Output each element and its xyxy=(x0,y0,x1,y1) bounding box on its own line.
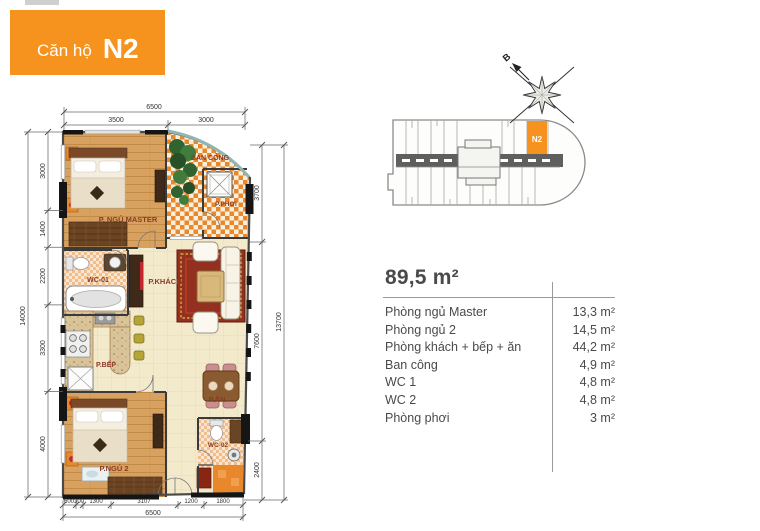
table-divider xyxy=(383,297,615,298)
area-row-value: 4,8 m² xyxy=(543,374,617,392)
area-row-label: Phòng khách + bếp + ăn xyxy=(385,339,543,357)
room-label-wc1: WC-01 xyxy=(87,277,109,284)
dim-right-1: 3700 xyxy=(254,185,261,201)
dim-left-3: 2200 xyxy=(40,268,47,284)
master-tv-cabinet xyxy=(155,170,165,202)
area-row-value: 14,5 m² xyxy=(543,322,617,340)
dim-right-2: 7600 xyxy=(254,333,261,349)
area-row: Phòng ngủ Master 13,3 m² xyxy=(385,304,617,322)
area-row: Phòng ngủ 2 14,5 m² xyxy=(385,322,617,340)
bedroom2-tv-cabinet xyxy=(153,414,163,448)
room-label-bedroom2: P.NGỦ 2 xyxy=(99,464,128,473)
room-label-master: P. NGỦ MASTER xyxy=(99,215,158,224)
dim-bot-6: 1800 xyxy=(216,499,230,505)
dim-left-total: 14000 xyxy=(20,306,27,326)
tv-screen xyxy=(140,262,143,290)
area-row-label: Phòng phơi xyxy=(385,410,543,428)
area-row: WC 1 4,8 m² xyxy=(385,374,617,392)
dim-left-1: 3000 xyxy=(40,163,47,179)
area-row-value: 4,9 m² xyxy=(543,357,617,375)
washing-machine-icon xyxy=(207,172,232,197)
compass-north-label: B xyxy=(501,51,513,64)
area-table: 89,5 m² Phòng ngủ Master 13,3 m² Phòng n… xyxy=(385,266,617,427)
dim-bottom-total: 6500 xyxy=(145,510,161,517)
dim-bot-4: 3107 xyxy=(137,499,151,505)
bedroom2-wardrobe xyxy=(108,477,162,494)
site-plan: N2 xyxy=(388,120,585,205)
area-row-label: Phòng ngủ 2 xyxy=(385,322,543,340)
dim-top-total: 6500 xyxy=(146,104,162,111)
area-row-label: WC 2 xyxy=(385,392,543,410)
apartment-plan: P. NGỦ MASTER BAN CÔNG P.PHƠI WC-01 P.KH… xyxy=(20,104,288,521)
dim-bot-3: 1300 xyxy=(89,499,103,505)
master-wardrobe xyxy=(69,222,127,246)
dim-bot-2: 300 xyxy=(74,499,85,505)
area-row-label: Phòng ngủ Master xyxy=(385,304,543,322)
page: Căn hộ N2 xyxy=(0,0,760,531)
building-core xyxy=(458,140,500,185)
dim-top-1: 3500 xyxy=(108,117,124,124)
master-bed xyxy=(66,147,127,212)
room-label-dining: P.ĂN xyxy=(209,395,226,404)
table-column-divider xyxy=(552,282,553,472)
dim-right-3: 2400 xyxy=(254,462,261,478)
area-row: WC 2 4,8 m² xyxy=(385,392,617,410)
bar-stools xyxy=(134,316,144,360)
fridge-icon xyxy=(68,367,93,390)
area-row: Phòng khách + bếp + ăn 44,2 m² xyxy=(385,339,617,357)
site-unit-label: N2 xyxy=(532,135,543,144)
area-row: Ban công 4,9 m² xyxy=(385,357,617,375)
room-label-balcony: BAN CÔNG xyxy=(191,153,230,162)
floor-plan-graphic: P. NGỦ MASTER BAN CÔNG P.PHƠI WC-01 P.KH… xyxy=(0,0,760,531)
sofa-set xyxy=(193,242,240,333)
room-label-living: P.KHÁCH xyxy=(148,277,181,286)
dim-left-2: 1400 xyxy=(40,221,47,237)
dim-right-total: 13700 xyxy=(276,312,283,332)
area-row-label: WC 1 xyxy=(385,374,543,392)
dim-bot-5: 1200 xyxy=(184,499,198,505)
area-row-value: 4,8 m² xyxy=(543,392,617,410)
area-row: Phòng phơi 3 m² xyxy=(385,410,617,428)
area-row-value: 13,3 m² xyxy=(543,304,617,322)
dim-top-2: 3000 xyxy=(198,117,214,124)
area-rows: Phòng ngủ Master 13,3 m² Phòng ngủ 2 14,… xyxy=(385,304,617,427)
room-label-wc2: WC-02 xyxy=(208,442,229,449)
compass: B xyxy=(501,51,574,123)
area-row-value: 44,2 m² xyxy=(543,339,617,357)
room-label-drying: P.PHƠI xyxy=(215,201,237,208)
dim-left-4: 3300 xyxy=(40,340,47,356)
area-row-value: 3 m² xyxy=(543,410,617,428)
area-row-label: Ban công xyxy=(385,357,543,375)
bedroom2-bed xyxy=(66,397,127,466)
dim-left-5: 4000 xyxy=(40,436,47,452)
total-area: 89,5 m² xyxy=(385,266,617,290)
